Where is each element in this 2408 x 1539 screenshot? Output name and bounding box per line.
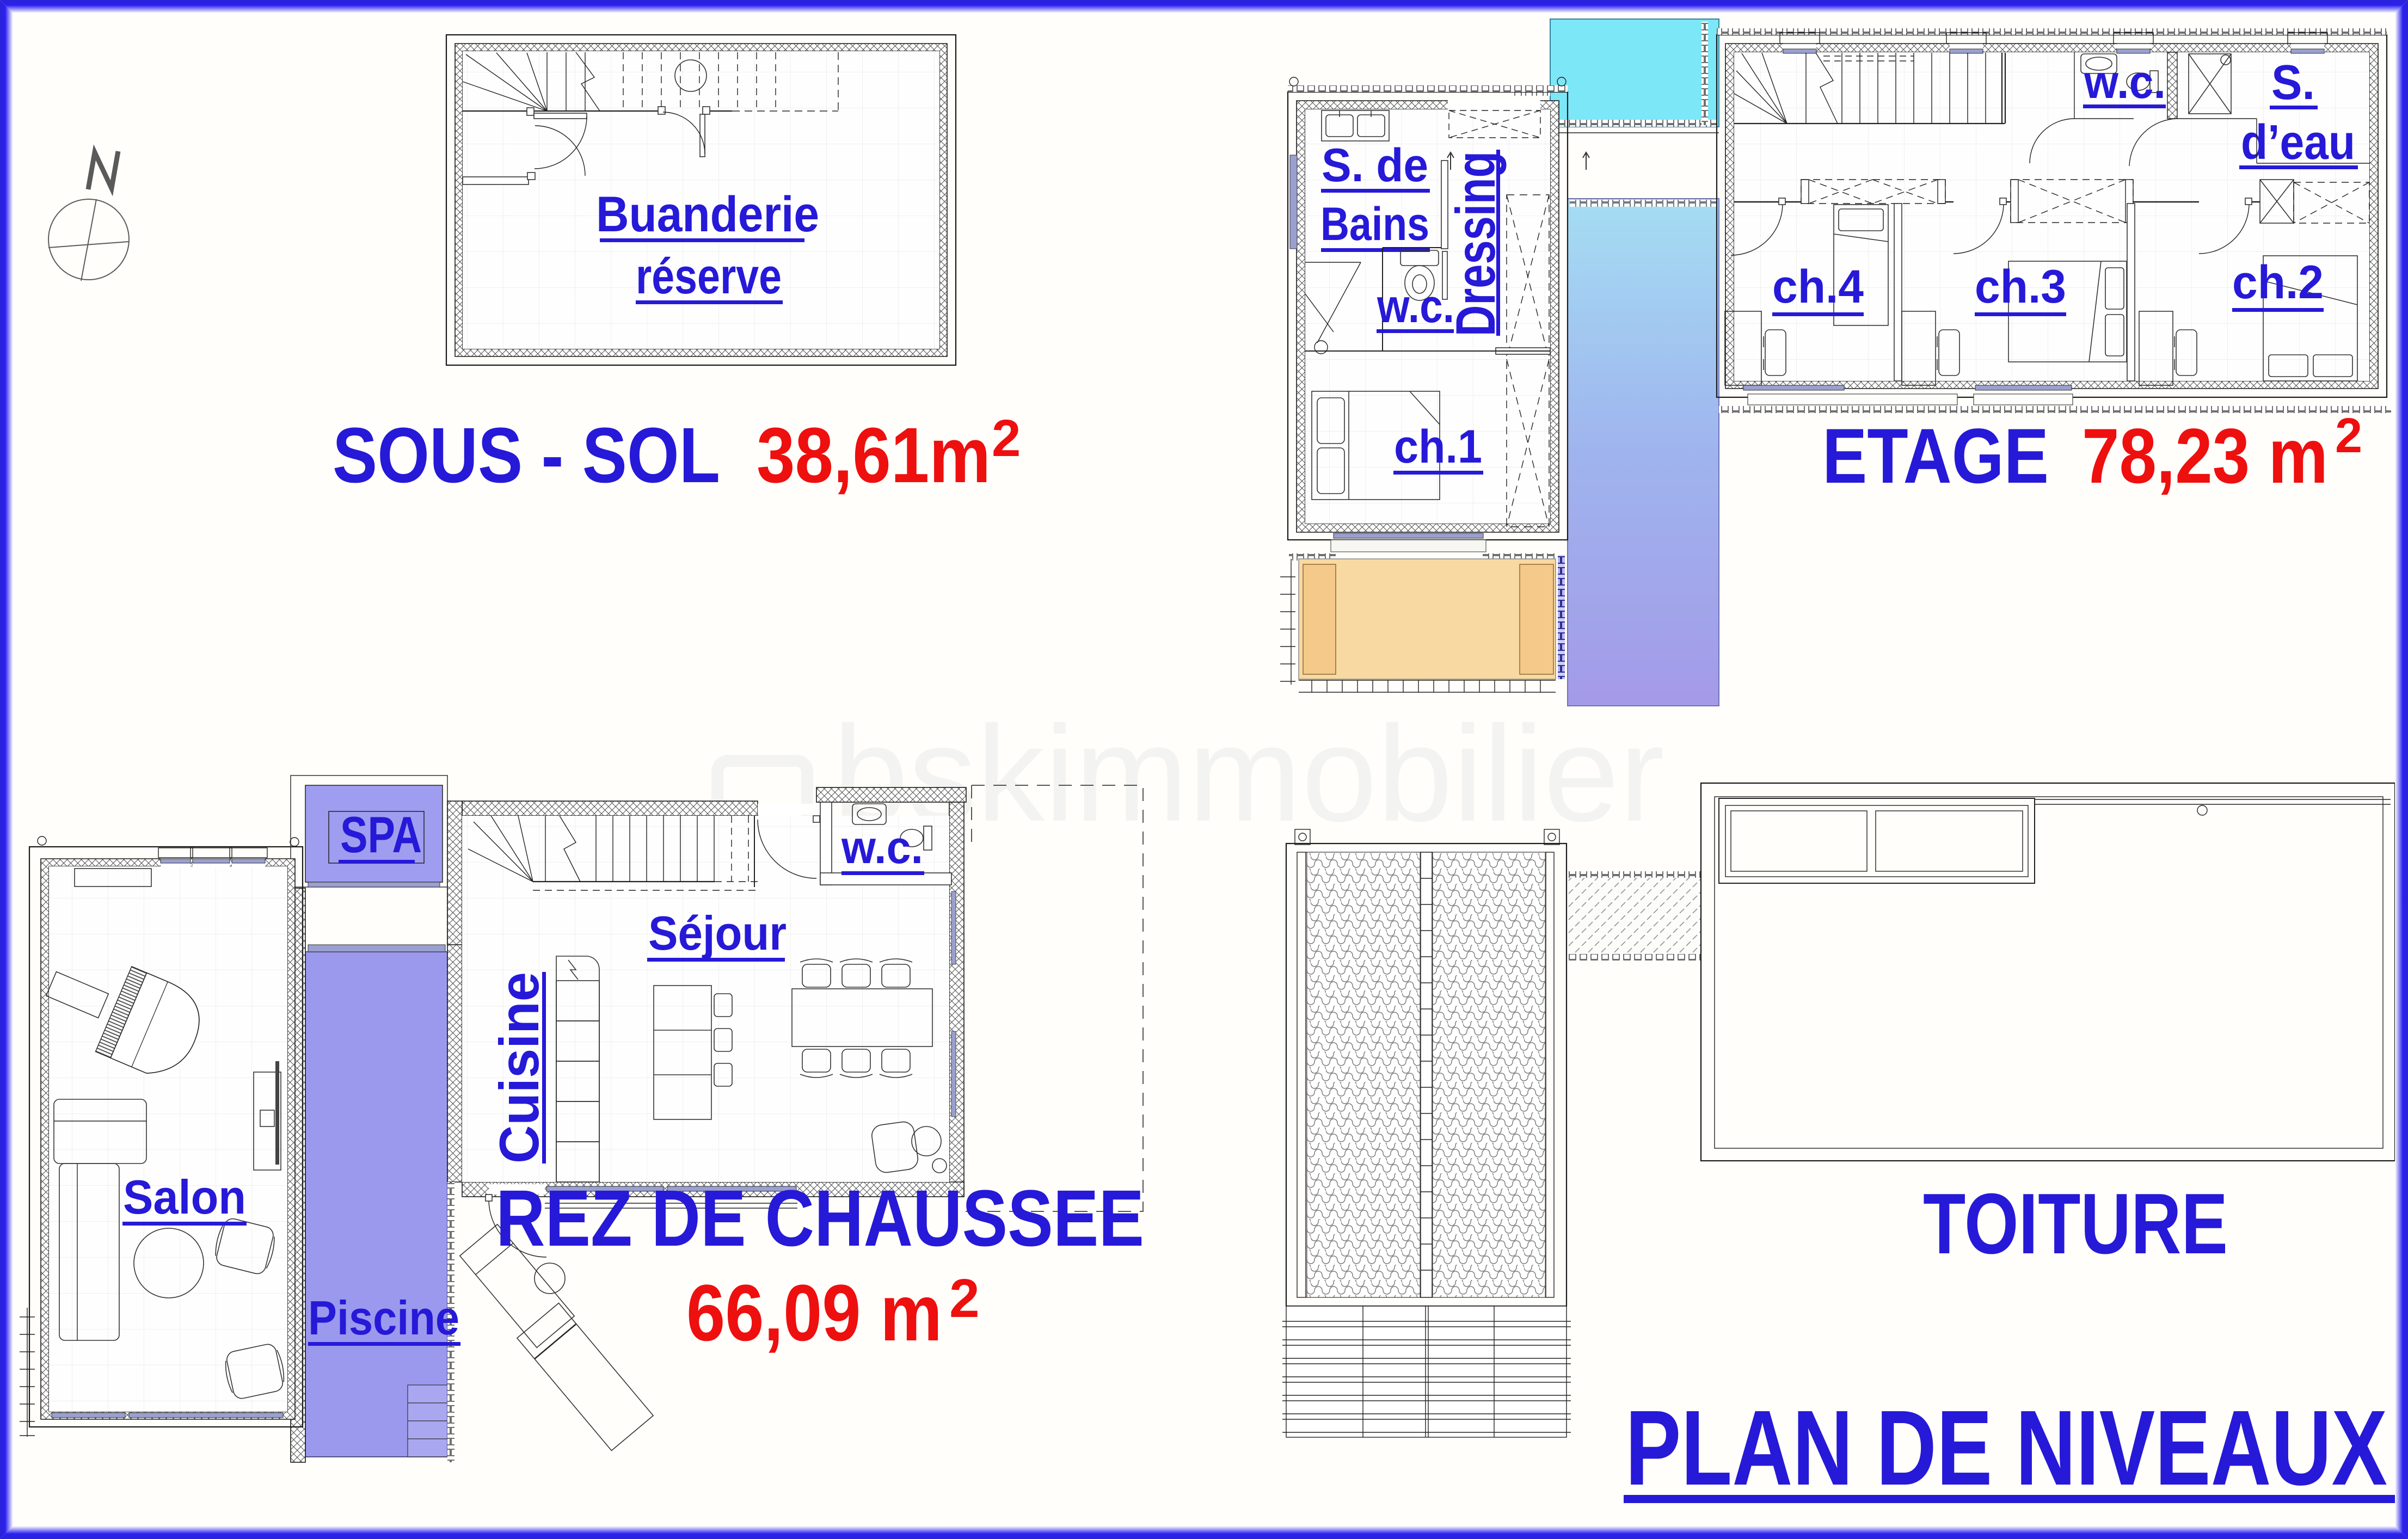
svg-text:2: 2 (992, 409, 1021, 467)
svg-text:66,09 m: 66,09 m (686, 1269, 942, 1358)
svg-text:Salon: Salon (123, 1170, 246, 1224)
svg-text:ch.1: ch.1 (1394, 421, 1482, 473)
svg-text:38,61m: 38,61m (757, 411, 991, 499)
svg-text:réserve: réserve (636, 249, 782, 304)
svg-text:ETAGE: ETAGE (1822, 413, 2049, 500)
svg-text:Bains: Bains (1320, 198, 1429, 250)
svg-text:ch.4: ch.4 (1772, 261, 1864, 313)
svg-text:Cuisine: Cuisine (488, 972, 550, 1164)
svg-text:SOUS - SOL: SOUS - SOL (333, 411, 720, 499)
svg-text:78,23 m: 78,23 m (2082, 413, 2328, 500)
svg-text:ch.2: ch.2 (2232, 256, 2324, 309)
svg-text:REZ DE CHAUSSEE: REZ DE CHAUSSEE (496, 1174, 1144, 1263)
svg-text:2: 2 (2335, 409, 2362, 463)
svg-text:ch.3: ch.3 (1975, 261, 2066, 313)
svg-text:Buanderie: Buanderie (596, 187, 819, 242)
svg-text:S. de: S. de (1322, 139, 1428, 192)
svg-text:2: 2 (949, 1268, 980, 1329)
svg-text:Piscine: Piscine (308, 1291, 459, 1345)
svg-text:w.c.: w.c. (1377, 280, 1454, 333)
svg-text:S.: S. (2271, 56, 2315, 110)
svg-text:Séjour: Séjour (648, 906, 787, 960)
svg-text:PLAN DE NIVEAUX: PLAN DE NIVEAUX (1625, 1388, 2387, 1507)
svg-text:d’eau: d’eau (2241, 115, 2355, 170)
svg-text:SPA: SPA (340, 806, 422, 863)
svg-text:TOITURE: TOITURE (1923, 1176, 2228, 1272)
svg-text:w.c.: w.c. (841, 822, 923, 873)
svg-text:w.c.: w.c. (2084, 56, 2166, 108)
